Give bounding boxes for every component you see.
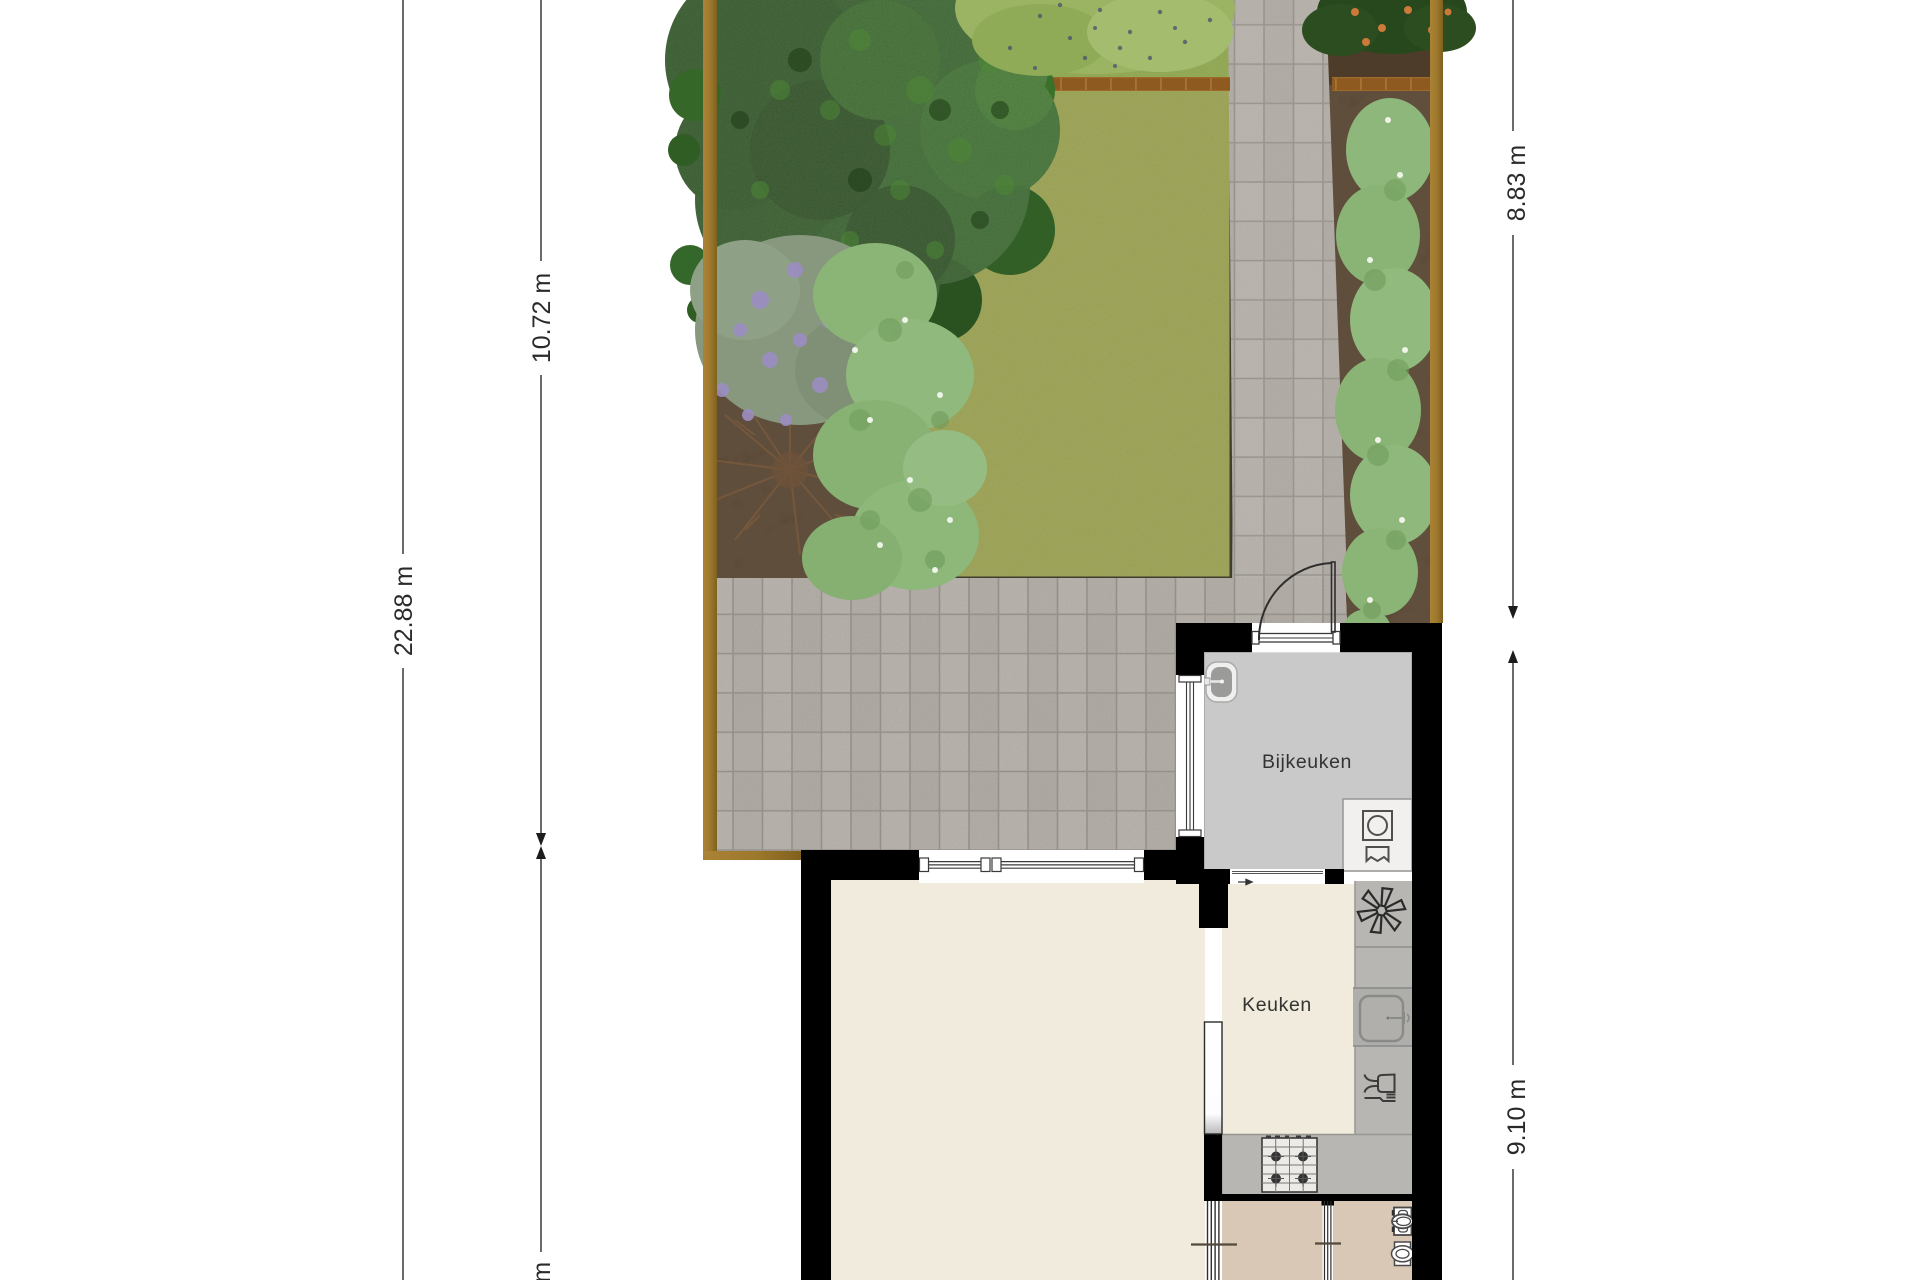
- svg-text:Bijkeuken: Bijkeuken: [1262, 751, 1352, 773]
- svg-text:22.88 m: 22.88 m: [390, 566, 418, 656]
- svg-text:9.10 m: 9.10 m: [1503, 1079, 1531, 1155]
- svg-text:10.72 m: 10.72 m: [528, 273, 556, 363]
- svg-text:9.16 m: 9.16 m: [528, 1262, 556, 1280]
- svg-text:8.83 m: 8.83 m: [1503, 145, 1531, 221]
- svg-text:Keuken: Keuken: [1242, 994, 1312, 1016]
